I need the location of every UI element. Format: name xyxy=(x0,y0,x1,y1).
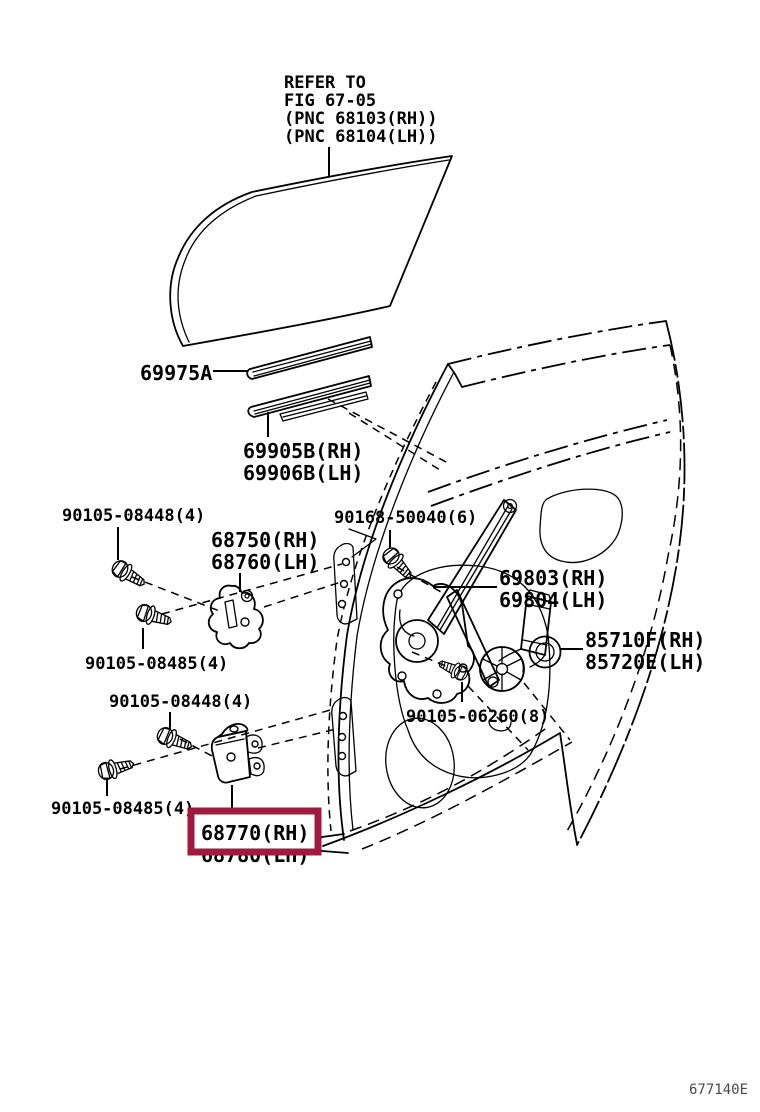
part-label-68750[interactable]: 68750(RH) xyxy=(211,528,319,552)
part-label-69975a[interactable]: 69975A xyxy=(140,361,212,385)
part-label-69905b[interactable]: 69905B(RH) xyxy=(243,439,363,463)
bolt-90105-08448-lower xyxy=(154,724,194,755)
rear-door-parts-diagram: REFER TO FIG 67-05 (PNC 68103(RH)) (PNC … xyxy=(0,0,760,1112)
part-label-69906b[interactable]: 69906B(LH) xyxy=(243,461,363,485)
refer-line-1: REFER TO xyxy=(284,73,366,93)
lower-door-hinge xyxy=(212,724,264,783)
upper-door-hinge xyxy=(209,586,263,649)
refer-line-4: (PNC 68104(LH)) xyxy=(284,127,438,147)
part-label-90105-08485-lower[interactable]: 90105-08485(4) xyxy=(51,799,194,819)
refer-line-3: (PNC 68103(RH)) xyxy=(284,109,438,129)
bolt-90105-08485-lower xyxy=(96,754,136,782)
part-label-90105-08448-lower[interactable]: 90105-08448(4) xyxy=(109,692,252,712)
figure-reference-note: REFER TO FIG 67-05 (PNC 68103(RH)) (PNC … xyxy=(284,73,438,147)
part-label-85720e[interactable]: 85720E(LH) xyxy=(585,650,705,674)
part-label-90168-50040[interactable]: 90168-50040(6) xyxy=(334,508,477,528)
part-label-68770[interactable]: 68770(RH) xyxy=(201,821,309,845)
part-label-69803[interactable]: 69803(RH) xyxy=(499,566,607,590)
door-glass xyxy=(170,156,452,346)
part-label-68760[interactable]: 68760(LH) xyxy=(211,550,319,574)
belt-molding-strips xyxy=(247,337,372,421)
part-label-90105-06260[interactable]: 90105-06260(8) xyxy=(406,707,549,727)
part-label-90105-08448-upper[interactable]: 90105-08448(4) xyxy=(62,506,205,526)
part-label-85710f[interactable]: 85710F(RH) xyxy=(585,628,705,652)
bolt-90105-08485-upper xyxy=(134,602,174,631)
diagram-code: 677140E xyxy=(689,1082,748,1098)
part-label-90105-08485-upper[interactable]: 90105-08485(4) xyxy=(85,654,228,674)
part-label-69804[interactable]: 69804(LH) xyxy=(499,588,607,612)
refer-line-2: FIG 67-05 xyxy=(284,91,376,111)
bolt-90105-08448-upper xyxy=(109,557,150,592)
parts-diagram-page: REFER TO FIG 67-05 (PNC 68103(RH)) (PNC … xyxy=(0,0,760,1112)
